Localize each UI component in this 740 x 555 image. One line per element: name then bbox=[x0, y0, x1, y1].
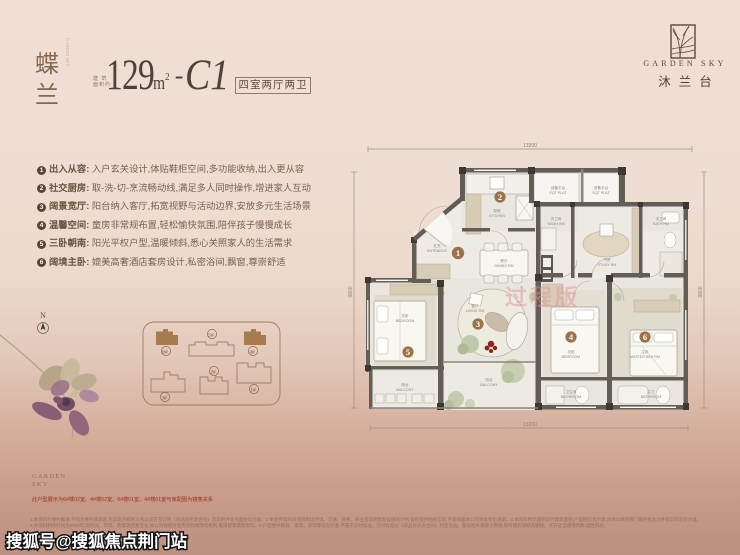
svg-text:BEDROOM: BEDROOM bbox=[396, 319, 415, 323]
svg-text:EQT PLAT: EQT PLAT bbox=[592, 191, 610, 195]
svg-text:次卧: 次卧 bbox=[567, 349, 575, 354]
svg-text:BALCONY: BALCONY bbox=[396, 388, 414, 392]
svg-text:4#: 4# bbox=[249, 350, 255, 356]
svg-text:餐厅: 餐厅 bbox=[500, 258, 508, 263]
svg-text:6: 6 bbox=[643, 332, 647, 342]
svg-text:BATH RM: BATH RM bbox=[653, 222, 669, 226]
svg-text:3: 3 bbox=[476, 319, 480, 329]
svg-text:5: 5 bbox=[406, 347, 410, 357]
svg-text:厨房: 厨房 bbox=[493, 208, 501, 213]
svg-text:LIVING RM: LIVING RM bbox=[466, 309, 484, 313]
svg-text:主卫: 主卫 bbox=[647, 389, 655, 394]
svg-text:次卧: 次卧 bbox=[401, 313, 409, 318]
svg-text:WASH RM: WASH RM bbox=[547, 222, 564, 226]
svg-text:玄关: 玄关 bbox=[433, 243, 441, 248]
svg-text:客厅: 客厅 bbox=[471, 303, 479, 308]
svg-text:次卫间: 次卫间 bbox=[551, 216, 562, 221]
svg-text:2: 2 bbox=[498, 192, 502, 202]
svg-text:过程版: 过程版 bbox=[505, 285, 580, 310]
svg-text:1: 1 bbox=[456, 248, 460, 258]
svg-text:阳台: 阳台 bbox=[485, 377, 493, 382]
svg-text:STUDY RM: STUDY RM bbox=[598, 263, 617, 267]
svg-text:13200: 13200 bbox=[523, 143, 537, 149]
svg-text:EQT PLAT: EQT PLAT bbox=[549, 191, 567, 195]
svg-text:设备平台: 设备平台 bbox=[551, 185, 566, 190]
svg-text:主卧: 主卧 bbox=[641, 349, 649, 354]
svg-text:书房: 书房 bbox=[603, 257, 611, 262]
svg-text:BATHROOM: BATHROOM bbox=[641, 395, 662, 399]
svg-text:1#: 1# bbox=[250, 388, 256, 394]
svg-text:13200: 13200 bbox=[523, 422, 537, 428]
svg-text:设备平台: 设备平台 bbox=[594, 185, 609, 190]
svg-text:BATHROOM: BATHROOM bbox=[561, 395, 582, 399]
svg-text:9800: 9800 bbox=[348, 286, 354, 297]
svg-text:次卫间: 次卫间 bbox=[656, 216, 667, 221]
svg-text:N: N bbox=[40, 311, 46, 320]
svg-text:BEDROOM: BEDROOM bbox=[562, 355, 581, 359]
svg-text:DINING RM: DINING RM bbox=[494, 264, 513, 268]
svg-text:卫生间: 卫生间 bbox=[566, 389, 577, 394]
svg-text:MASTER BED RM: MASTER BED RM bbox=[630, 355, 660, 359]
svg-text:9800: 9800 bbox=[698, 286, 704, 297]
svg-text:BALCONY: BALCONY bbox=[480, 383, 498, 387]
svg-text:阳台: 阳台 bbox=[401, 382, 409, 387]
svg-text:KITCHEN: KITCHEN bbox=[489, 214, 505, 218]
svg-text:ENTRANCE: ENTRANCE bbox=[427, 249, 447, 253]
